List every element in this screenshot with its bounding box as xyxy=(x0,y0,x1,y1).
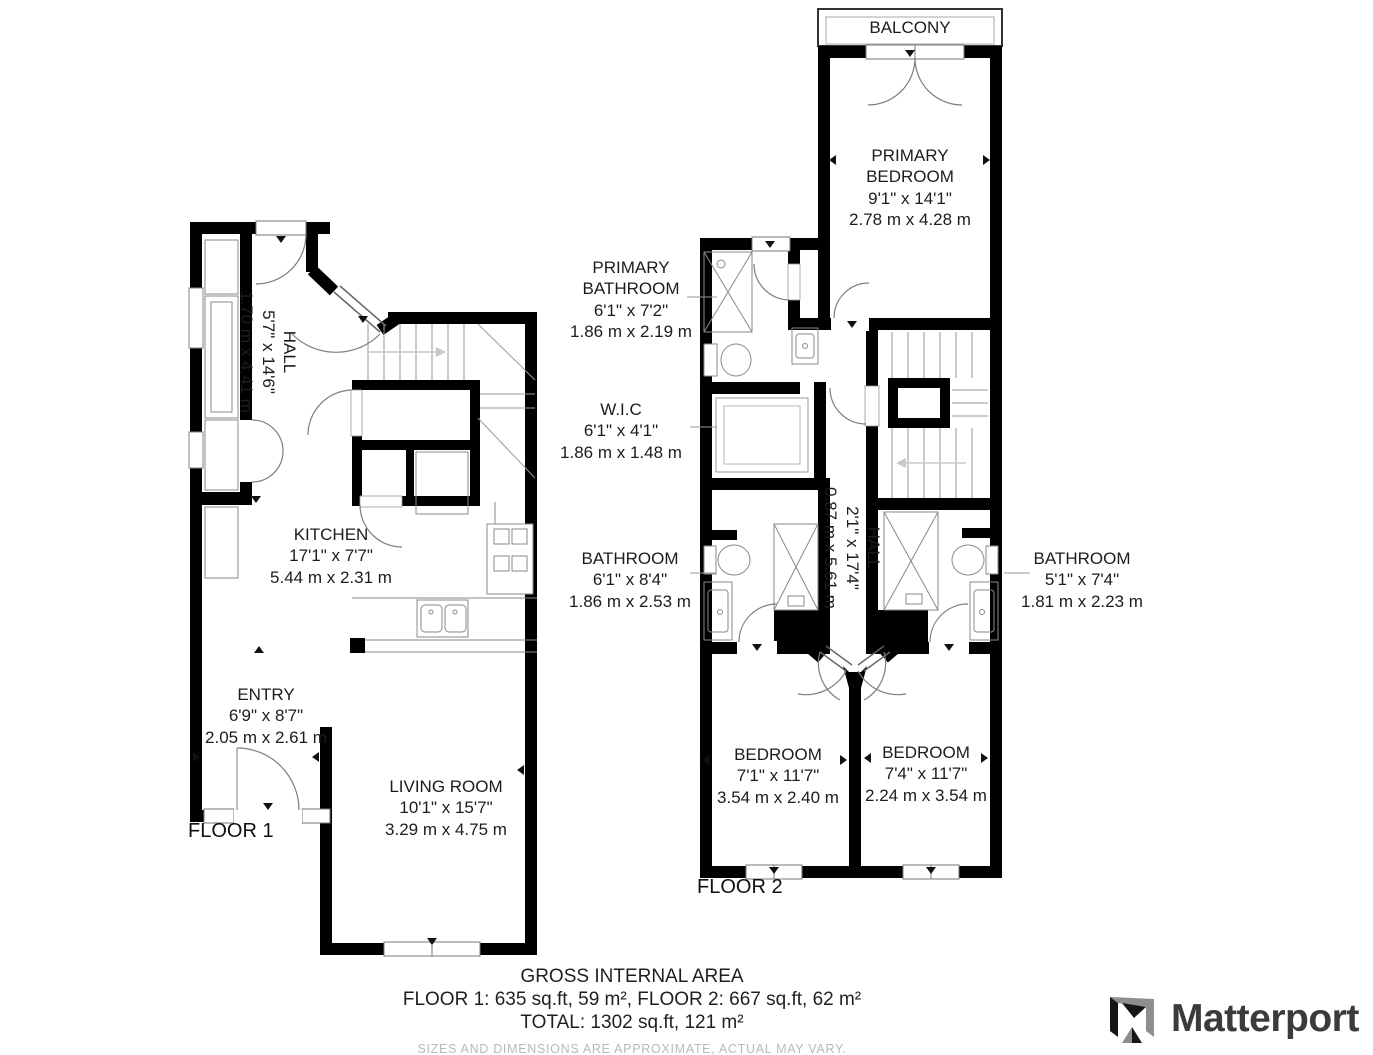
floor1-tag: FLOOR 1 xyxy=(188,820,274,843)
room-label-primary-bedroom: PRIMARY BEDROOM 9'1" x 14'1" 2.78 m x 4.… xyxy=(845,145,975,231)
summary-disclaimer: SIZES AND DIMENSIONS ARE APPROXIMATE, AC… xyxy=(403,1042,861,1055)
room-label-bedroom-right: BEDROOM 7'4" x 11'7" 2.24 m x 3.54 m xyxy=(866,742,986,806)
room-label-bathroom-right: BATHROOM 5'1" x 7'4" 1.81 m x 2.23 m xyxy=(1022,548,1142,612)
floor2-tag: FLOOR 2 xyxy=(697,876,783,899)
room-label-entry: ENTRY 6'9" x 8'7" 2.05 m x 2.61 m xyxy=(206,684,326,748)
summary-total-area: TOTAL: 1302 sq.ft, 121 m² xyxy=(403,1012,861,1035)
area-summary: GROSS INTERNAL AREA FLOOR 1: 635 sq.ft, … xyxy=(403,966,861,1055)
room-label-kitchen: KITCHEN 17'1" x 7'7" 5.44 m x 2.31 m xyxy=(271,524,391,588)
room-label-wic: W.I.C 6'1" x 4'1" 1.86 m x 1.48 m xyxy=(566,399,676,463)
room-label-hall-f1: HALL 5'7" x 14'6" 1.70 m x 4.41 m xyxy=(236,351,300,353)
matterport-logo-text: Matterport xyxy=(1171,997,1359,1041)
summary-floor-areas: FLOOR 1: 635 sq.ft, 59 m², FLOOR 2: 667 … xyxy=(403,989,861,1012)
room-label-hall-f2: HALL 2'1" x 17'4" 0.87 m x 5.61 m xyxy=(820,547,884,549)
summary-title: GROSS INTERNAL AREA xyxy=(403,966,861,989)
floor-plan-drawing xyxy=(0,0,1373,1055)
floorplan-page: HALL 5'7" x 14'6" 1.70 m x 4.41 m KITCHE… xyxy=(0,0,1373,1055)
room-label-living-room: LIVING ROOM 10'1" x 15'7" 3.29 m x 4.75 … xyxy=(366,776,526,840)
matterport-logo-icon xyxy=(1102,990,1158,1048)
room-label-bathroom-left: BATHROOM 6'1" x 8'4" 1.86 m x 2.53 m xyxy=(570,548,690,612)
matterport-logo: Matterport xyxy=(1102,990,1359,1048)
room-label-balcony: BALCONY xyxy=(850,17,970,38)
room-label-primary-bathroom: PRIMARY BATHROOM 6'1" x 7'2" 1.86 m x 2.… xyxy=(569,257,693,343)
